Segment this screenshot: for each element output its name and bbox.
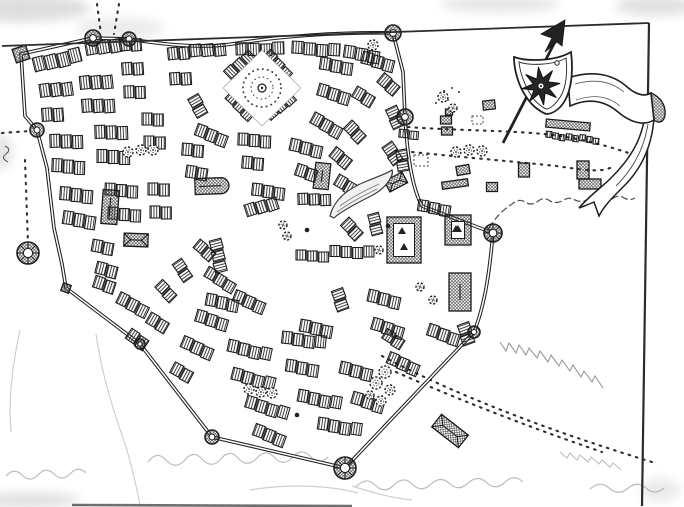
house-row xyxy=(238,133,271,148)
house-row xyxy=(148,183,169,196)
trees-layer xyxy=(123,40,487,406)
tree xyxy=(279,221,287,229)
scanned-town-map-page xyxy=(0,0,684,507)
tree xyxy=(123,147,133,157)
landmark-building xyxy=(456,164,470,175)
buildings-layer xyxy=(32,36,599,447)
tree xyxy=(477,146,487,156)
house-row xyxy=(95,124,128,140)
house-row xyxy=(189,41,226,59)
tree xyxy=(385,385,395,395)
house-row xyxy=(194,309,229,331)
landmark-building xyxy=(577,161,589,179)
wall-tower xyxy=(334,457,356,479)
house-row xyxy=(170,72,192,86)
tree xyxy=(366,391,374,399)
tree xyxy=(368,40,378,50)
house-row xyxy=(167,46,190,61)
landmark-building xyxy=(579,179,601,189)
house-row xyxy=(154,279,178,303)
house-row xyxy=(244,395,290,421)
house-row xyxy=(339,361,374,381)
tree xyxy=(256,387,266,397)
house-row xyxy=(319,57,353,75)
town-map-drawing xyxy=(0,0,684,507)
house-row xyxy=(79,73,113,91)
landmark-building xyxy=(442,127,453,135)
landmark-building xyxy=(101,189,119,224)
house-row xyxy=(285,359,319,377)
house-row xyxy=(145,312,170,334)
house-row xyxy=(317,417,362,437)
tree xyxy=(449,104,457,112)
landmark-building xyxy=(519,163,530,177)
house-row xyxy=(289,138,324,158)
house-row xyxy=(330,246,374,259)
house-row xyxy=(91,239,114,256)
house-row xyxy=(169,362,194,383)
scan-edge-streak xyxy=(72,505,352,506)
landmark-building xyxy=(313,162,331,189)
house-row xyxy=(367,212,384,236)
ribbon-tail xyxy=(579,116,654,216)
house-row xyxy=(81,97,115,114)
house-row xyxy=(227,339,273,362)
house-row xyxy=(546,131,600,145)
house-row xyxy=(122,62,144,76)
landmark-building xyxy=(387,217,421,263)
wall-tower xyxy=(484,224,502,242)
tree xyxy=(148,145,158,155)
tree xyxy=(136,145,146,155)
house-row xyxy=(426,323,461,346)
house-row xyxy=(316,83,351,105)
house-row xyxy=(59,187,93,204)
wall-tower xyxy=(12,45,30,63)
ribbon-fold xyxy=(651,93,665,122)
house-row xyxy=(41,107,63,122)
wall-tower xyxy=(122,32,136,46)
landmark-building xyxy=(441,116,452,124)
house-row xyxy=(330,288,350,312)
house-row xyxy=(179,336,214,361)
house-row xyxy=(187,94,209,119)
wall-tower xyxy=(17,242,39,264)
house-row xyxy=(171,258,193,282)
wall-tower xyxy=(205,430,219,444)
tree xyxy=(375,246,383,254)
tree xyxy=(283,232,291,240)
landmark-building xyxy=(195,177,230,194)
house-row xyxy=(297,389,343,410)
house-row xyxy=(242,156,264,170)
wall-tower xyxy=(61,283,71,293)
house-row xyxy=(52,159,85,175)
hedge-scrub-layer xyxy=(489,196,635,470)
house-row xyxy=(251,183,285,200)
tree xyxy=(244,384,254,394)
tree xyxy=(429,296,437,304)
landmark-buildings xyxy=(101,100,601,448)
tree xyxy=(464,145,474,155)
landmark-building xyxy=(449,273,471,311)
house-row xyxy=(309,112,344,140)
house-row xyxy=(296,250,329,262)
wall-tower xyxy=(30,123,44,137)
landmark-building xyxy=(483,100,496,110)
tree xyxy=(267,388,277,398)
house-row xyxy=(376,73,401,97)
house-row xyxy=(343,120,367,144)
landmark-building xyxy=(546,119,591,131)
tree xyxy=(438,92,448,102)
house-row xyxy=(298,192,331,206)
house-row xyxy=(328,146,353,169)
house-row xyxy=(182,143,204,157)
landmark-building xyxy=(442,179,469,190)
house-row xyxy=(50,133,83,149)
tree xyxy=(376,396,386,406)
house-row xyxy=(62,211,96,230)
tree xyxy=(451,147,461,157)
tree xyxy=(416,283,424,291)
house-row xyxy=(124,85,146,99)
tree xyxy=(370,377,382,389)
house-row xyxy=(194,123,229,147)
house-row xyxy=(142,113,163,126)
house-row xyxy=(252,423,287,447)
house-row xyxy=(115,292,150,319)
landmark-building xyxy=(124,233,148,247)
wall-tower xyxy=(397,109,413,125)
house-row xyxy=(340,217,364,241)
landmark-building xyxy=(487,183,498,192)
house-row xyxy=(292,41,341,57)
house-row xyxy=(39,80,73,99)
wall-tower xyxy=(135,339,145,349)
house-row xyxy=(367,289,402,309)
house-row xyxy=(399,129,419,140)
house-row xyxy=(150,206,171,219)
landmark-building xyxy=(445,215,471,245)
landmark-building xyxy=(432,414,469,448)
wall-tower xyxy=(468,326,480,338)
house-row xyxy=(244,195,279,218)
house-row xyxy=(351,86,376,108)
tree xyxy=(379,366,391,378)
